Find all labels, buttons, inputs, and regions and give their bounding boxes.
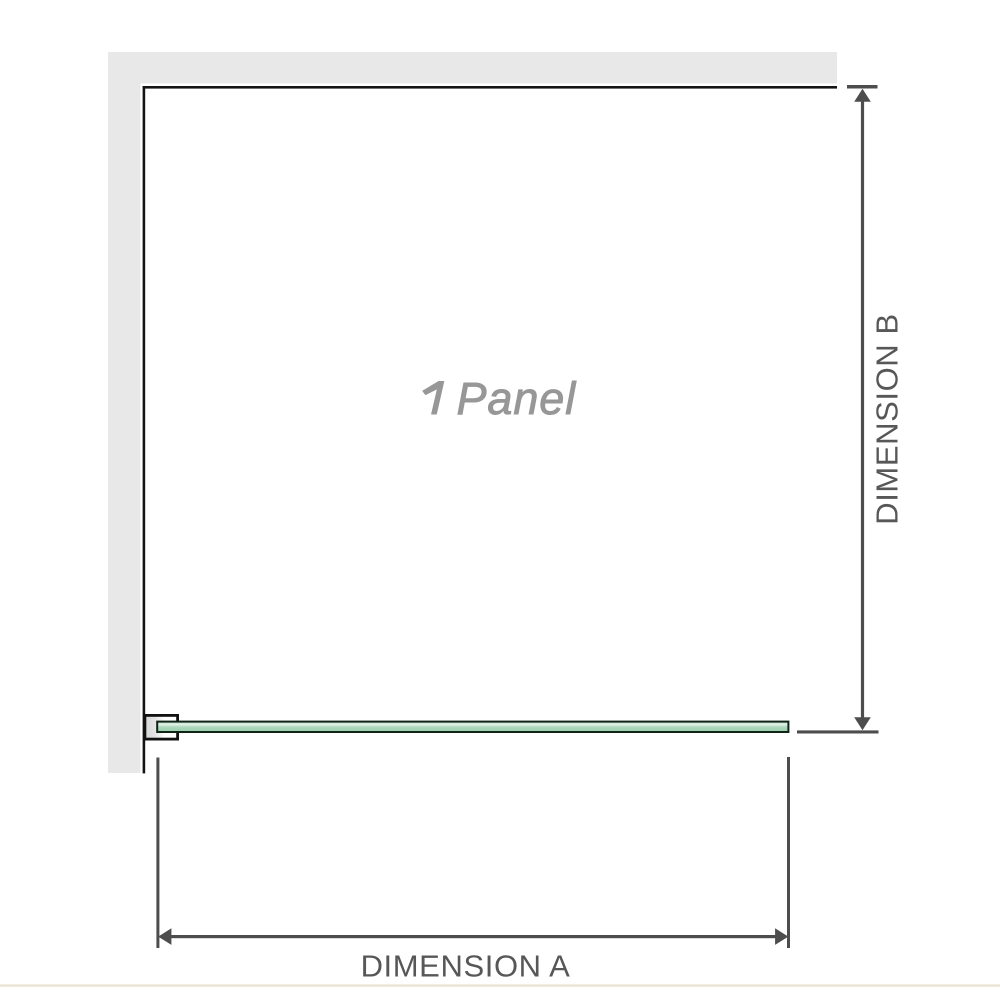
svg-text:Panel: Panel (457, 373, 578, 424)
svg-text:DIMENSION B: DIMENSION B (870, 313, 905, 525)
svg-text:DIMENSION A: DIMENSION A (361, 949, 571, 984)
